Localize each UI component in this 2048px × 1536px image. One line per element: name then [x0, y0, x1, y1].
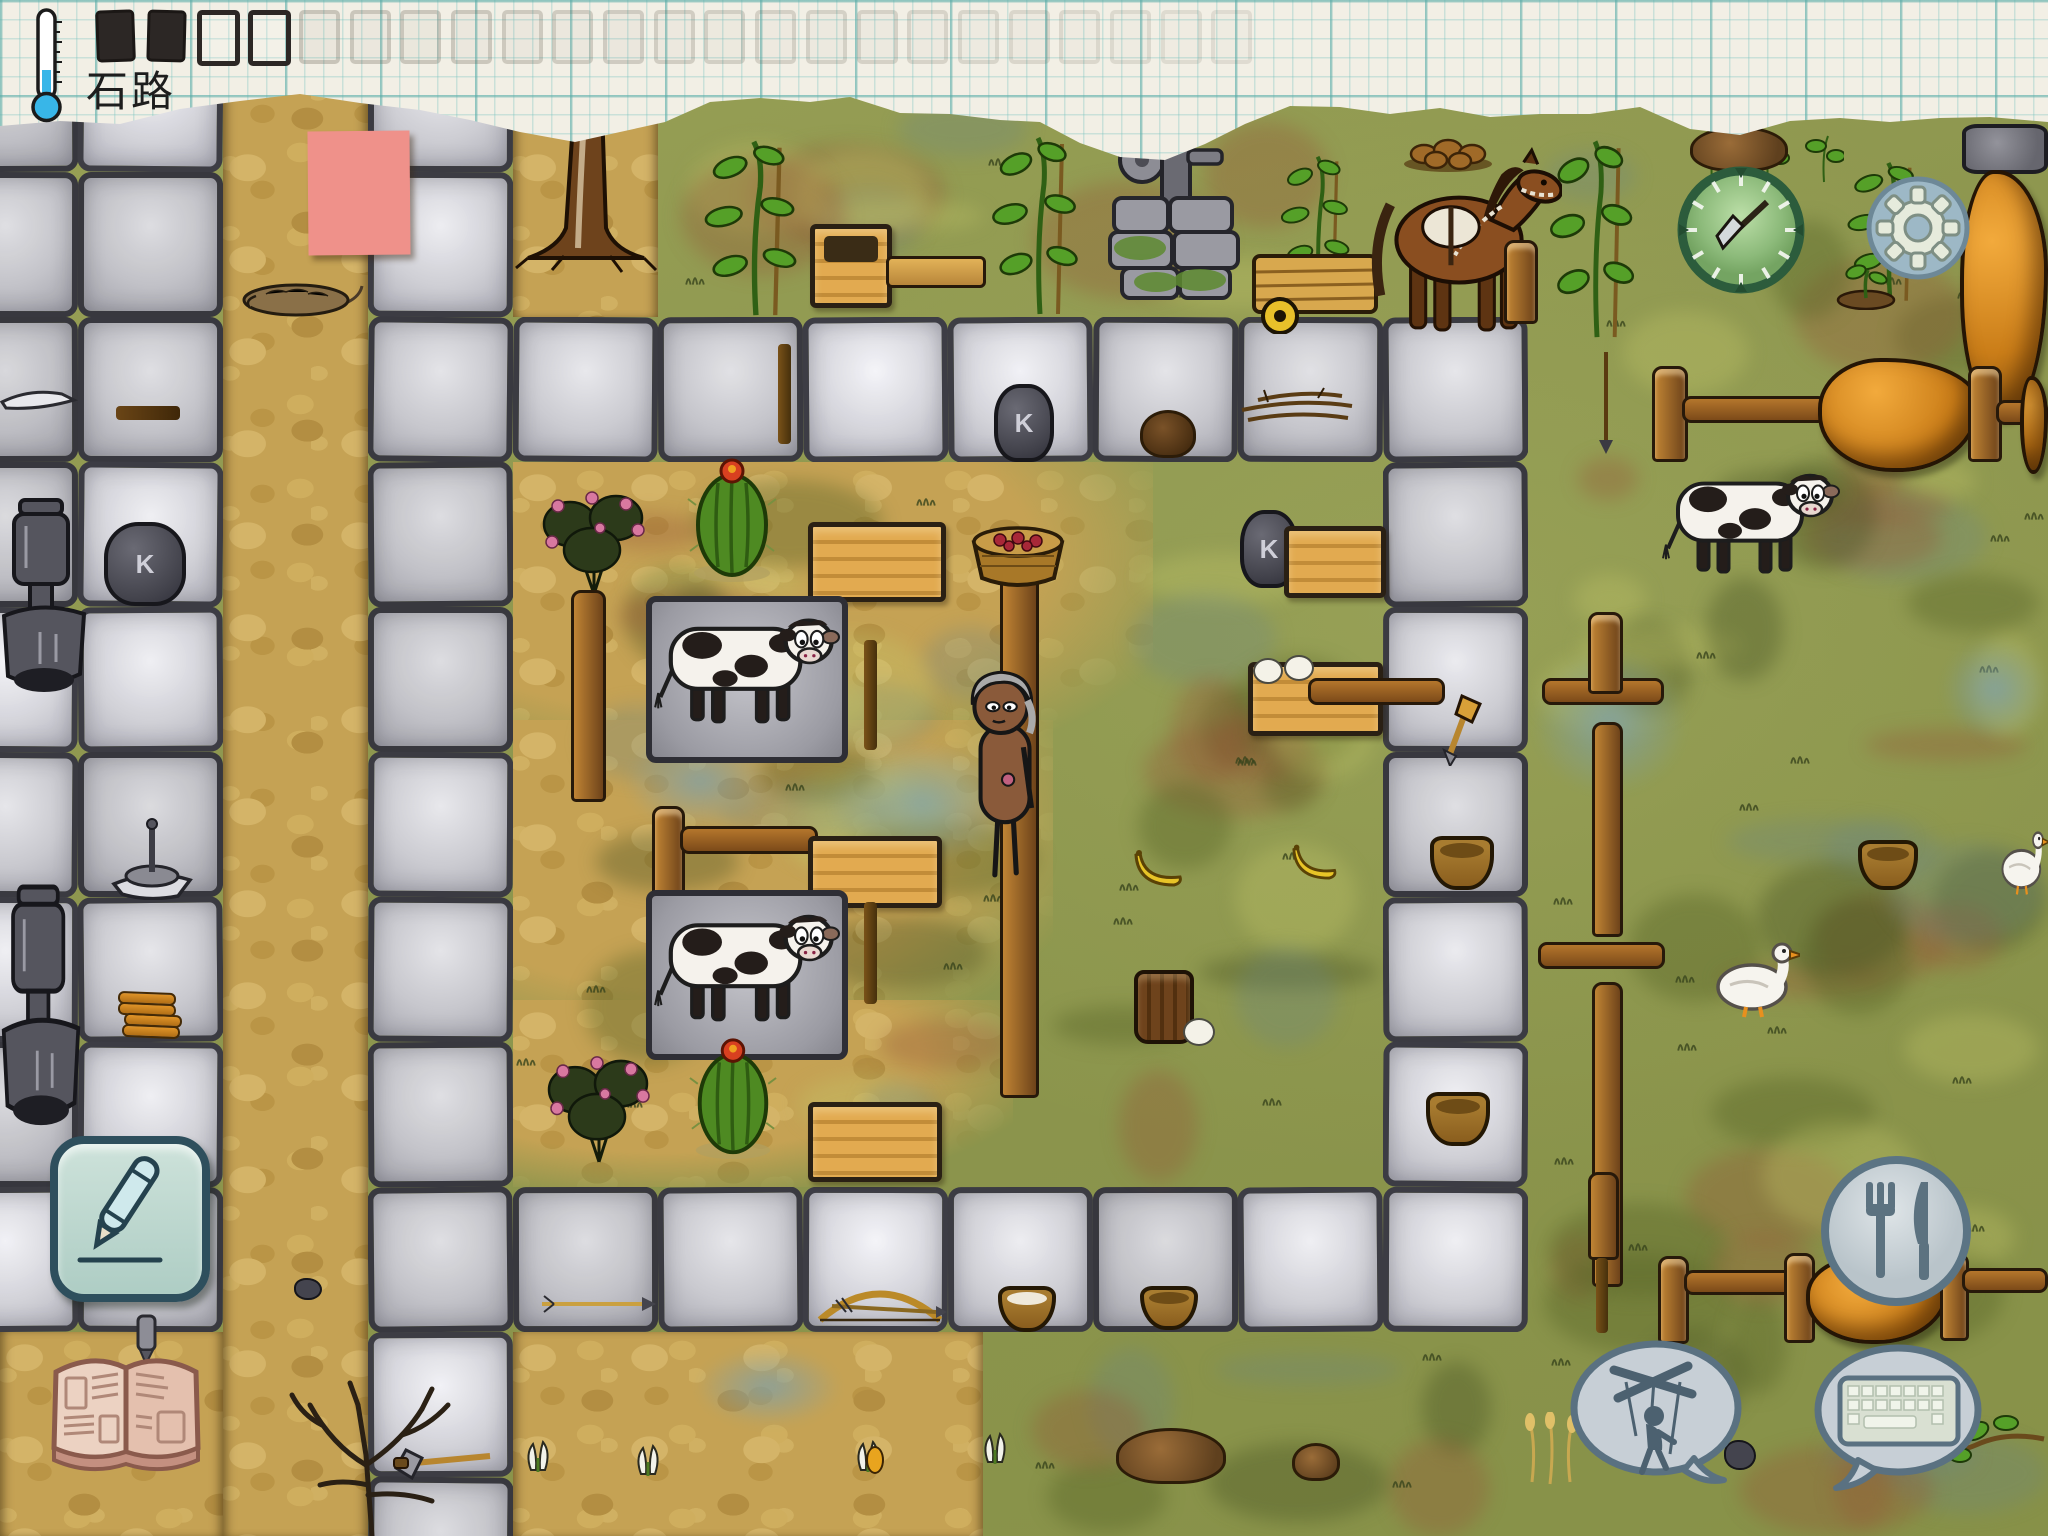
sticky-note[interactable] — [307, 131, 410, 256]
seed[interactable] — [866, 1446, 884, 1474]
hotbar-slot-faded[interactable] — [755, 10, 796, 64]
hotbar-slot-faded[interactable] — [1059, 10, 1100, 64]
rail[interactable] — [1308, 678, 1445, 705]
banana[interactable] — [1134, 843, 1188, 887]
grass-tuft — [1951, 1070, 1973, 1084]
pencil-icon — [58, 1144, 186, 1278]
stone-tile[interactable] — [802, 317, 948, 462]
grass-tuft — [1552, 891, 1574, 905]
stickv[interactable] — [778, 344, 791, 444]
game-screen: KKK 石路 — [0, 0, 2048, 1536]
selected-tile-label: 石路 — [86, 58, 176, 119]
mound[interactable] — [1116, 1428, 1226, 1484]
stone-tile[interactable] — [1383, 897, 1528, 1043]
food-menu-button[interactable] — [1818, 1152, 1974, 1310]
hotbar-slot-faded[interactable] — [806, 10, 847, 64]
rail[interactable] — [1684, 1270, 1796, 1295]
rockslab[interactable] — [1962, 124, 2048, 174]
sprout[interactable] — [523, 1436, 553, 1474]
grass-tuft — [1674, 969, 1696, 983]
keyboard-chat-button[interactable] — [1806, 1340, 1986, 1500]
grass-tuft — [1695, 645, 1717, 659]
stone-tile[interactable] — [368, 607, 513, 752]
lump[interactable] — [1140, 410, 1196, 458]
stone-tile[interactable] — [368, 1186, 513, 1332]
grass-tuft — [784, 777, 806, 791]
pond — [1942, 638, 2048, 740]
jug-letter: K — [1260, 534, 1279, 565]
grass-tuft — [1676, 1037, 1698, 1051]
rail[interactable] — [680, 826, 818, 854]
dirt-road — [223, 50, 368, 1536]
post[interactable] — [1588, 612, 1623, 694]
mound[interactable] — [1292, 1443, 1340, 1481]
stone-tile[interactable] — [1237, 1187, 1383, 1332]
pen-nib-icon — [138, 1316, 155, 1364]
hotbar-slot-faded[interactable] — [299, 10, 340, 64]
thermometer-icon — [24, 6, 70, 126]
cow[interactable] — [652, 602, 840, 726]
hotbar-slot-faded[interactable] — [603, 10, 644, 64]
goose[interactable] — [1998, 825, 2048, 897]
plant[interactable] — [986, 124, 1096, 322]
box[interactable] — [1284, 526, 1386, 598]
boulder[interactable] — [1818, 358, 1980, 472]
hotbar-slot-faded[interactable] — [350, 10, 391, 64]
ground-patch — [1236, 947, 1336, 1047]
stone-tile[interactable] — [368, 1042, 513, 1188]
arrowh[interactable] — [538, 1292, 658, 1316]
hatchet[interactable] — [1434, 694, 1484, 766]
grass-tuft — [1421, 1347, 1443, 1361]
ground-patch — [1706, 578, 1782, 681]
stand[interactable] — [108, 818, 196, 900]
grass-tuft — [1391, 1474, 1413, 1488]
hotbar-slot-faded[interactable] — [1211, 10, 1252, 64]
plant[interactable] — [698, 128, 816, 323]
hotbar-slot-faded[interactable] — [502, 10, 543, 64]
stone-tile[interactable] — [78, 317, 223, 462]
hotbar-slot-faded[interactable] — [958, 10, 999, 64]
stickv[interactable] — [864, 640, 877, 750]
adze[interactable] — [386, 1436, 498, 1488]
machine[interactable] — [0, 496, 88, 704]
goose[interactable] — [1710, 935, 1800, 1020]
cow[interactable] — [1660, 458, 1840, 576]
stone-road — [368, 50, 513, 1536]
rail[interactable] — [1962, 1268, 2048, 1293]
branches[interactable] — [1238, 380, 1356, 432]
bow[interactable] — [812, 1276, 947, 1334]
keyboard-icon — [1840, 1378, 1958, 1444]
ground-patch — [1578, 457, 1638, 500]
stone-tile[interactable] — [1383, 461, 1528, 607]
machine[interactable] — [0, 882, 82, 1140]
stickv[interactable] — [864, 902, 877, 1004]
hotbar-slot-outlined[interactable] — [248, 10, 291, 66]
grass-tuft — [515, 1052, 537, 1066]
stone-tile[interactable] — [77, 606, 223, 752]
pond — [696, 1348, 841, 1426]
kindling[interactable] — [118, 992, 182, 1044]
hotbar-slot-faded[interactable] — [1161, 10, 1202, 64]
puppet-chat-button[interactable] — [1566, 1336, 1752, 1498]
arrowv[interactable] — [1592, 348, 1620, 456]
pole[interactable] — [1592, 722, 1623, 937]
sprout[interactable] — [633, 1440, 663, 1478]
post[interactable] — [652, 806, 685, 903]
hotbar-slot-faded[interactable] — [552, 10, 593, 64]
ground-patch — [881, 1020, 1013, 1070]
stone-tile[interactable] — [368, 752, 513, 898]
grass-tuft — [1553, 1151, 1575, 1165]
pole[interactable] — [571, 590, 606, 802]
crate[interactable] — [810, 224, 892, 308]
book-icon — [54, 1361, 198, 1469]
post[interactable] — [1504, 240, 1538, 324]
jug[interactable]: K — [994, 384, 1054, 462]
basket[interactable] — [1426, 1092, 1490, 1146]
basketberries[interactable] — [964, 512, 1072, 596]
person[interactable] — [952, 656, 1054, 884]
grass-tuft — [2023, 506, 2045, 520]
jug-letter: K — [136, 549, 155, 580]
stone-tile[interactable] — [0, 751, 79, 897]
box[interactable] — [808, 1102, 942, 1182]
grass-tuft — [915, 492, 937, 506]
stone-tile[interactable] — [78, 172, 223, 317]
plant[interactable] — [1544, 126, 1652, 346]
grass-tuft — [585, 979, 607, 993]
grass-tuft — [1034, 1455, 1056, 1469]
hotbar-slot-faded[interactable] — [400, 10, 441, 64]
stone-tile[interactable] — [368, 897, 513, 1043]
eggs[interactable] — [1253, 655, 1315, 683]
stone-tile[interactable] — [368, 316, 513, 462]
stickv[interactable] — [1596, 1258, 1608, 1333]
cactus[interactable] — [688, 1035, 778, 1160]
settings-button[interactable] — [1864, 174, 1972, 282]
rat[interactable] — [236, 276, 364, 320]
jug[interactable]: K — [104, 522, 186, 606]
basket[interactable] — [1430, 836, 1494, 890]
hotbar-slot-faded[interactable] — [857, 10, 898, 64]
grass-tuft — [1261, 1092, 1283, 1106]
pole[interactable] — [1588, 1172, 1619, 1260]
rail[interactable] — [1538, 942, 1665, 969]
boulder[interactable] — [2020, 376, 2048, 474]
grass-tuft — [942, 956, 964, 970]
ground-patch — [1907, 574, 2039, 632]
stone-road — [1383, 317, 1528, 1332]
jug-letter: K — [1015, 408, 1034, 439]
grass-tuft — [1789, 750, 1811, 764]
gear-icon — [1877, 187, 1959, 269]
rail[interactable] — [1682, 396, 1827, 423]
grass-tuft — [1738, 797, 1760, 811]
hotbar-slot-faded[interactable] — [654, 10, 695, 64]
stick[interactable] — [116, 406, 180, 420]
hotbar-slot-faded[interactable] — [704, 10, 745, 64]
ground-patch — [1172, 677, 1249, 784]
grass-tuft — [1627, 1237, 1649, 1251]
banana[interactable] — [1292, 838, 1342, 880]
stone-tile[interactable] — [657, 1187, 803, 1332]
egg[interactable] — [1183, 1018, 1211, 1042]
time-dial-button[interactable] — [1675, 164, 1807, 296]
stone-tile[interactable] — [0, 172, 78, 317]
hotbar-slot-faded[interactable] — [1009, 10, 1050, 64]
stone-tile[interactable] — [1383, 317, 1528, 463]
ground-patch — [1215, 1354, 1402, 1385]
ground-patch — [1119, 1070, 1198, 1181]
hotbar-slot-faded[interactable] — [451, 10, 492, 64]
stone-tile[interactable] — [513, 317, 659, 462]
pebble[interactable] — [294, 1278, 322, 1300]
plank[interactable] — [886, 256, 986, 288]
bush[interactable] — [535, 1028, 663, 1166]
grass-tuft — [1234, 750, 1256, 764]
cow[interactable] — [652, 898, 840, 1024]
stone-tile[interactable] — [368, 461, 513, 607]
knife[interactable] — [0, 384, 80, 414]
grass-tuft — [1989, 528, 2011, 542]
bush[interactable] — [530, 464, 658, 598]
hotbar-slot-faded[interactable] — [1110, 10, 1151, 64]
stone-tile[interactable] — [1383, 1187, 1528, 1332]
hotbar-slot-faded[interactable] — [907, 10, 948, 64]
hotbar-slot-outlined[interactable] — [197, 10, 240, 66]
draw-map-button[interactable] — [50, 1136, 210, 1302]
grass-tuft — [1112, 911, 1134, 925]
hotbar-slot-filled[interactable] — [95, 9, 136, 62]
cactus[interactable] — [686, 455, 778, 583]
grass-tuft — [1766, 1020, 1788, 1034]
box[interactable] — [808, 522, 946, 602]
post[interactable] — [1658, 1256, 1689, 1344]
sprout[interactable] — [980, 1428, 1010, 1466]
hotbar-slot-filled[interactable] — [146, 9, 186, 62]
journal-button[interactable] — [38, 1312, 218, 1480]
